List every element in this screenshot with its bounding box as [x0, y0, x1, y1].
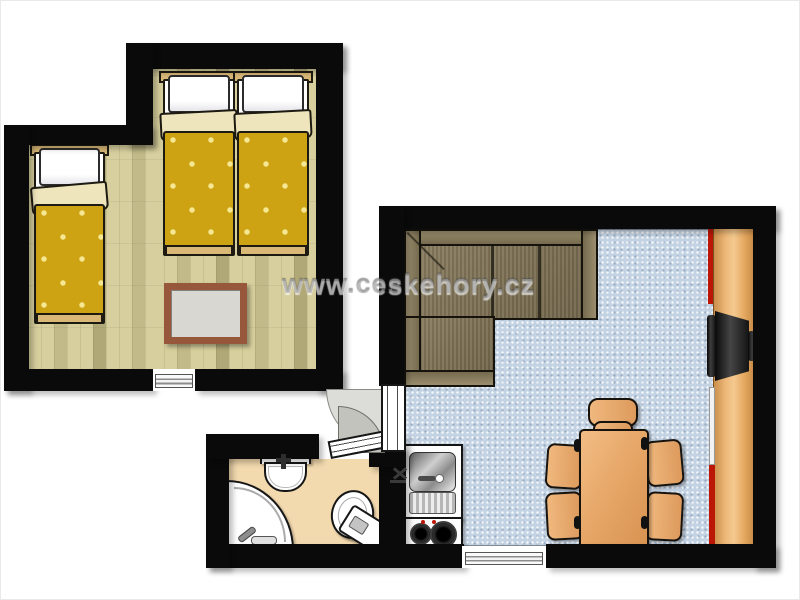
tv-screen [707, 315, 716, 377]
bed-pillow [168, 75, 230, 113]
bed-duvet [34, 204, 105, 318]
table-corner-hook [574, 516, 581, 529]
stove-knob-light [432, 520, 436, 524]
living-wall-right [753, 206, 776, 568]
table-corner-hook [641, 516, 648, 529]
dining-chair-right-1 [644, 438, 685, 487]
faucet-spout [418, 476, 436, 481]
sofa-backrest [406, 231, 596, 246]
bed-footboard [165, 245, 233, 256]
kitchen-sink [409, 452, 456, 492]
bed-duvet [237, 131, 309, 250]
cabinet-edge-light [709, 387, 715, 465]
bedroom-wall-bottom-left [4, 369, 153, 391]
tv-body [715, 311, 749, 381]
bedroom-window [153, 369, 195, 391]
cabinet-red-edge-top [708, 224, 713, 304]
dining-chair-right-2 [645, 491, 685, 542]
cabinet-red-edge-bottom [709, 463, 715, 544]
bed-footboard [239, 245, 307, 256]
kitchen-counter [402, 444, 463, 521]
sofa-armrest [581, 231, 596, 318]
bed-duvet [163, 131, 235, 250]
table-corner-hook [641, 437, 648, 450]
kitchen-drainboard [409, 492, 456, 514]
bedroom-rug [164, 283, 247, 344]
bed-pillow [242, 75, 304, 113]
bed-single-3 [237, 71, 309, 256]
main-door-leaf [381, 384, 406, 452]
dining-table [579, 429, 649, 550]
corner-sofa-vertical [404, 316, 495, 387]
watermark: www.ceskehory.cz [282, 269, 535, 300]
window-glazing [465, 552, 543, 565]
cistern-button [348, 515, 369, 535]
faucet-cross-icon [390, 480, 406, 483]
bedroom-wall-left [4, 125, 29, 391]
floor-plan: www.ceskehory.cz [0, 0, 800, 600]
bedroom-wall-right [316, 43, 343, 391]
tv-cabinet [713, 224, 755, 546]
bedroom-wall-top [126, 43, 343, 69]
living-room-window [462, 546, 546, 568]
stove-burner-small [410, 523, 432, 545]
basin-faucet-handle [276, 458, 291, 462]
bedroom-wall-bottom-right [195, 369, 343, 391]
window-glazing [155, 374, 193, 388]
bed-single-2 [163, 71, 235, 256]
faucet-head [435, 474, 444, 483]
living-wall-top [379, 206, 776, 229]
table-corner-hook [574, 439, 581, 452]
bed-single-1 [34, 144, 105, 324]
bathroom-wall-top [206, 434, 319, 459]
bottom-wall-right [546, 544, 776, 568]
stove-knob-light [421, 520, 425, 524]
bed-footboard [36, 313, 103, 324]
bottom-wall-left [206, 544, 464, 568]
bed-pillow [39, 148, 100, 186]
sofa-seam [538, 244, 541, 318]
sofa-armrest [406, 370, 493, 385]
